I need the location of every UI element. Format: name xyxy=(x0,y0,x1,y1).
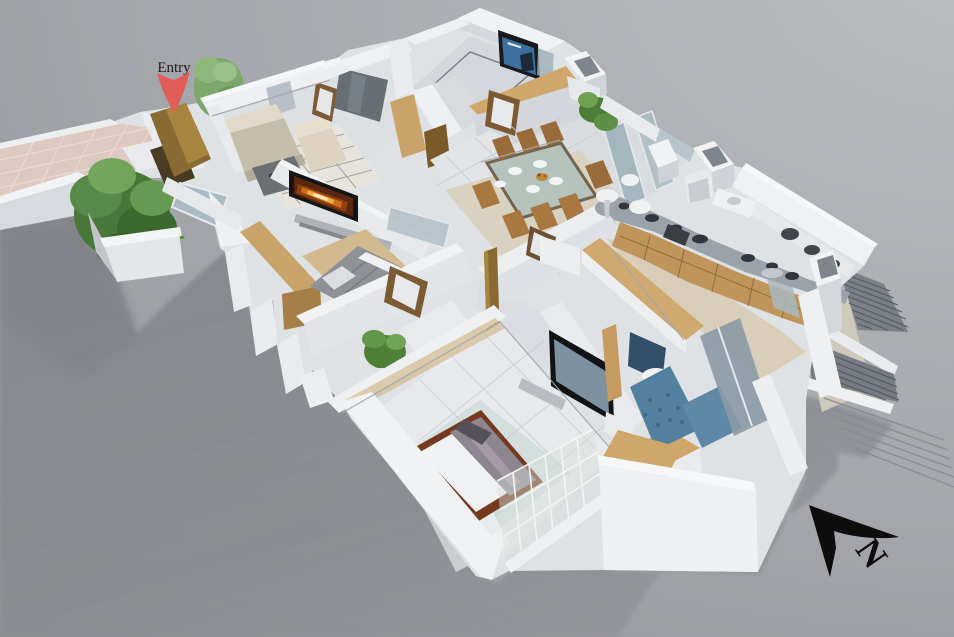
svg-text:Entry: Entry xyxy=(157,60,191,76)
